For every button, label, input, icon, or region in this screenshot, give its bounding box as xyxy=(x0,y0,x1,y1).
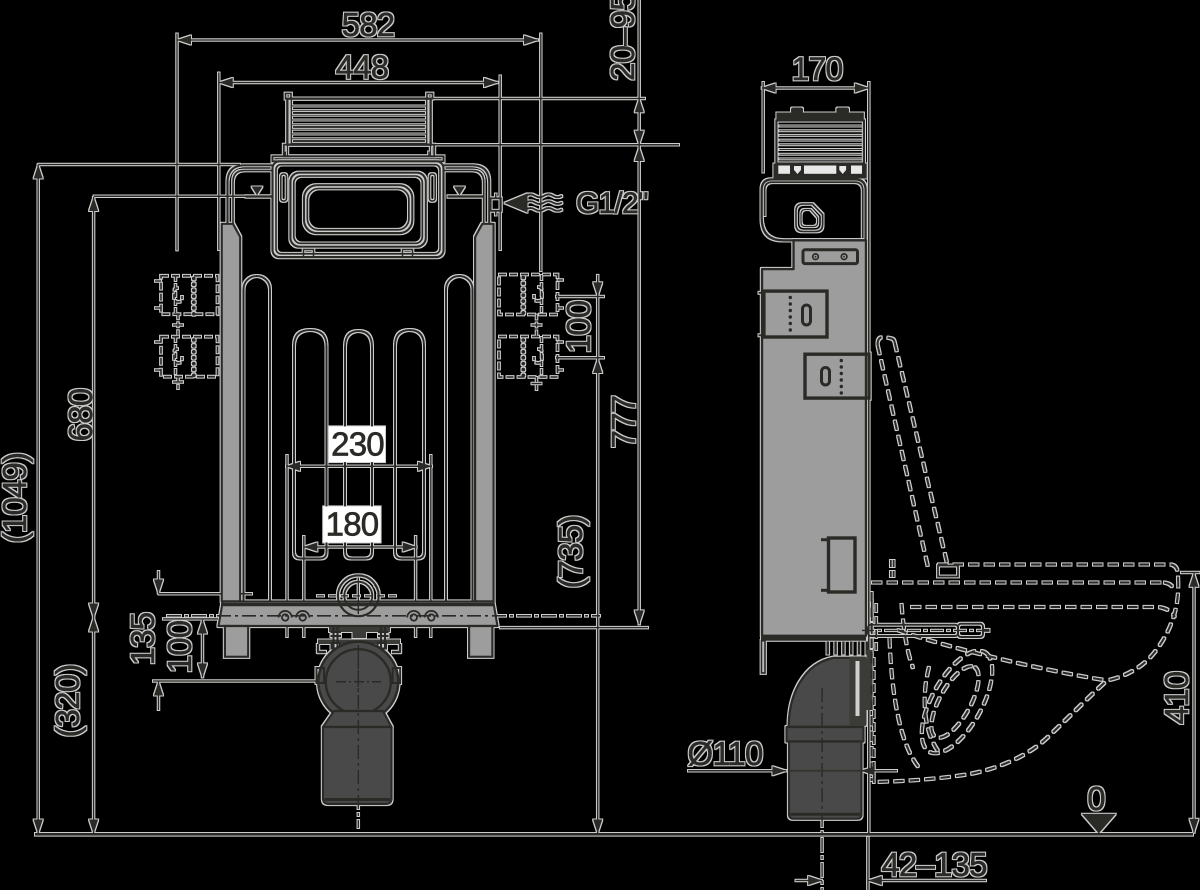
svg-text:(735): (735) xyxy=(552,515,589,588)
svg-text:135: 135 xyxy=(124,613,161,666)
svg-text:(1049): (1049) xyxy=(0,453,33,544)
svg-text:582: 582 xyxy=(342,6,395,43)
svg-text:G1/2": G1/2" xyxy=(576,187,648,220)
svg-text:0: 0 xyxy=(1087,780,1105,817)
svg-text:(320): (320) xyxy=(49,664,86,737)
svg-text:42–135: 42–135 xyxy=(881,846,986,883)
svg-text:180: 180 xyxy=(326,506,379,543)
svg-text:777: 777 xyxy=(605,396,642,449)
svg-text:170: 170 xyxy=(792,51,843,87)
svg-text:448: 448 xyxy=(336,49,389,86)
svg-text:Ø110: Ø110 xyxy=(687,735,763,772)
svg-text:410: 410 xyxy=(1158,671,1195,724)
svg-text:680: 680 xyxy=(62,388,99,441)
svg-text:230: 230 xyxy=(331,426,384,463)
svg-text:100: 100 xyxy=(161,620,198,673)
svg-text:100: 100 xyxy=(560,300,597,353)
svg-text:20–95: 20–95 xyxy=(604,0,641,81)
